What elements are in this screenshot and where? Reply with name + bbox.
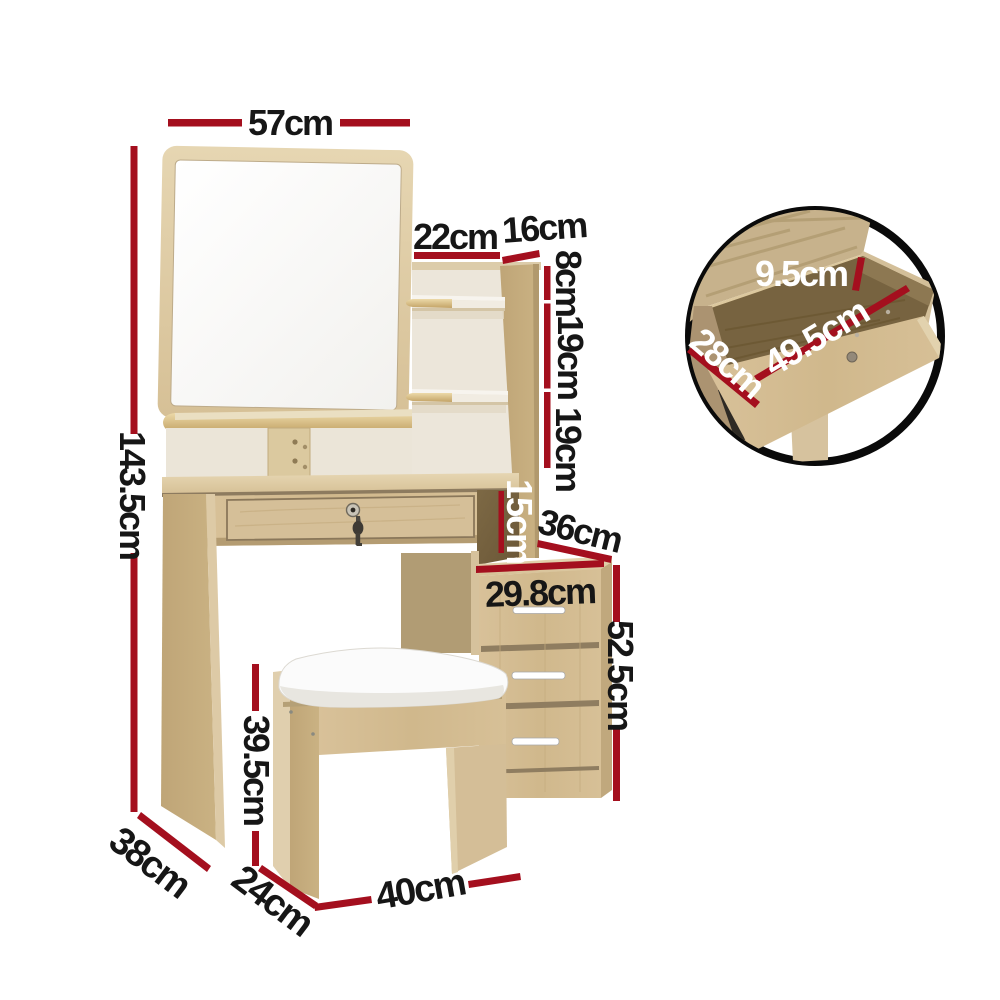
svg-text:39.5cm: 39.5cm — [236, 715, 277, 825]
svg-text:57cm: 57cm — [248, 102, 332, 143]
svg-text:8cm: 8cm — [548, 250, 589, 316]
svg-text:143.5cm: 143.5cm — [112, 431, 153, 559]
svg-text:19cm: 19cm — [548, 407, 589, 491]
svg-text:29.8cm: 29.8cm — [484, 570, 595, 615]
svg-text:15cm: 15cm — [499, 479, 540, 563]
svg-text:52.5cm: 52.5cm — [600, 620, 641, 730]
svg-text:19cm: 19cm — [550, 315, 591, 399]
svg-text:16cm: 16cm — [501, 204, 588, 251]
svg-text:22cm: 22cm — [413, 216, 497, 257]
svg-text:9.5cm: 9.5cm — [755, 253, 847, 294]
